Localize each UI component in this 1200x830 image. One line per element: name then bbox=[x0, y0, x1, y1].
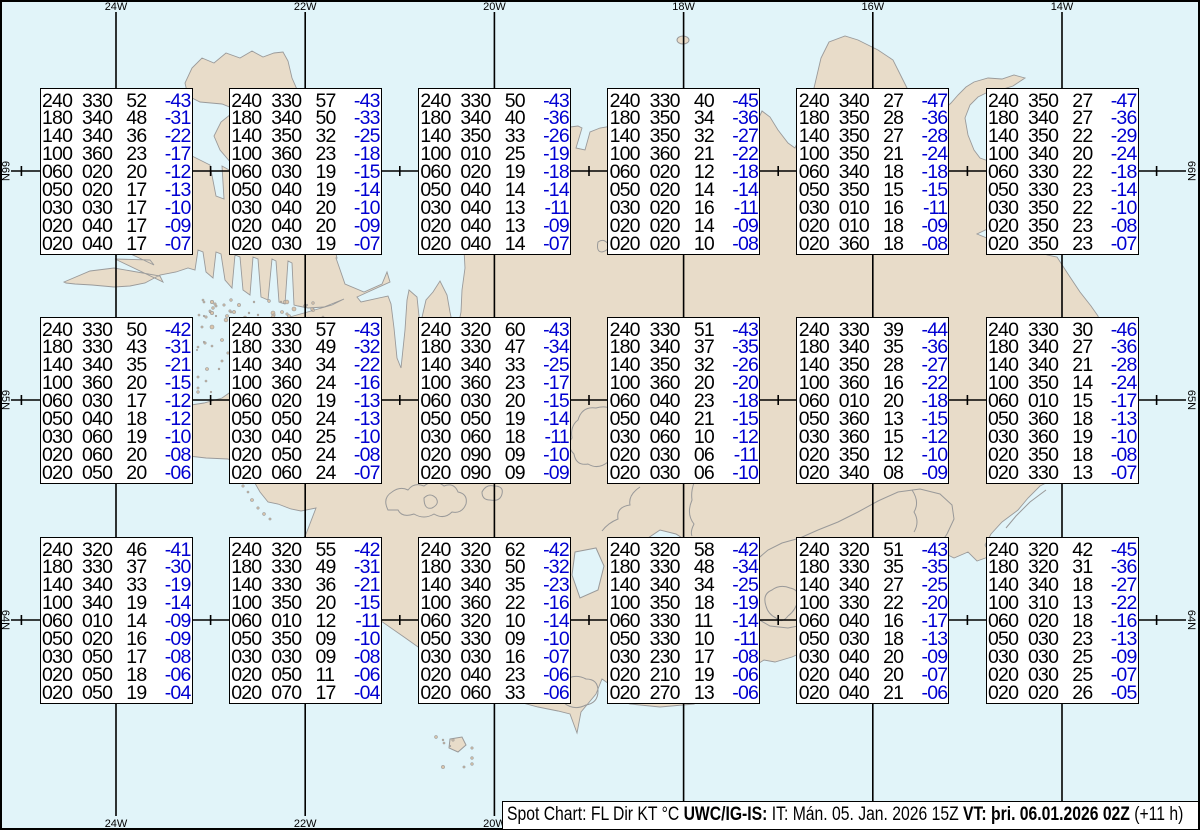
svg-text:65N: 65N bbox=[1185, 390, 1197, 410]
svg-text:64N: 64N bbox=[1185, 610, 1197, 630]
svg-text:24W: 24W bbox=[105, 1, 128, 13]
svg-text:22W: 22W bbox=[294, 1, 317, 13]
svg-text:66N: 66N bbox=[1185, 161, 1197, 181]
svg-text:14W: 14W bbox=[1051, 1, 1074, 13]
svg-text:16W: 16W bbox=[861, 1, 884, 13]
svg-text:20W: 20W bbox=[483, 1, 506, 13]
svg-text:18W: 18W bbox=[672, 1, 695, 13]
